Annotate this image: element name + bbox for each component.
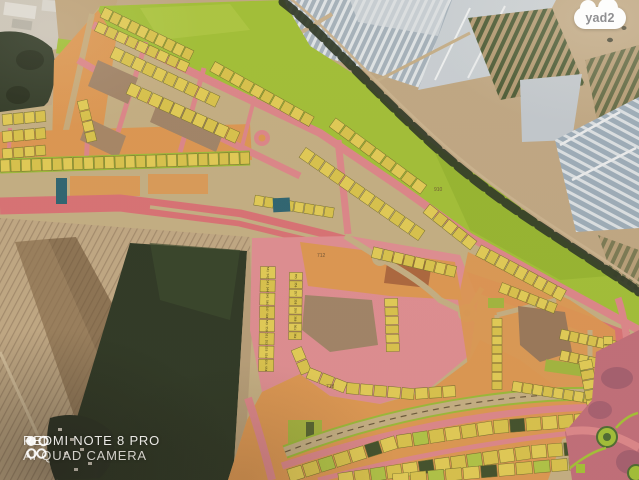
parcel-cell bbox=[209, 153, 219, 165]
parcel-cell bbox=[63, 158, 73, 170]
parcel-cell bbox=[32, 159, 42, 171]
parcel-cell bbox=[13, 130, 24, 142]
block-label: 718 bbox=[326, 384, 335, 390]
parcel-cell bbox=[573, 391, 584, 402]
parcel-number: 359 bbox=[293, 308, 297, 313]
parcel-cell bbox=[480, 465, 497, 478]
parcel-cell bbox=[428, 469, 445, 480]
parcel-cell bbox=[198, 153, 208, 165]
parcel-cell bbox=[146, 155, 156, 167]
parcel-cell bbox=[512, 381, 523, 392]
parcel-cell bbox=[2, 114, 13, 126]
parcel-cell bbox=[294, 202, 305, 213]
parcel-cell bbox=[466, 453, 482, 468]
parcel-cell bbox=[11, 159, 21, 171]
parcel-cell bbox=[492, 345, 502, 353]
park-planting bbox=[601, 367, 633, 389]
parcel-cell bbox=[167, 154, 177, 166]
parcel-cell bbox=[477, 421, 493, 436]
parcel-cell bbox=[533, 460, 550, 473]
parcel-cell bbox=[386, 334, 399, 343]
parcel-cell bbox=[516, 461, 533, 474]
parcel-cell bbox=[542, 386, 553, 397]
parcel-cell bbox=[547, 443, 563, 457]
parcel-cell bbox=[492, 318, 502, 326]
parcel-cell bbox=[385, 316, 398, 325]
parcel-cell bbox=[42, 158, 52, 170]
parcel-number: 553 554 bbox=[264, 346, 268, 358]
parcel-cell bbox=[80, 110, 92, 122]
parcel-cell bbox=[13, 147, 24, 158]
parcel-cell bbox=[492, 372, 502, 380]
parcel-number: 549 550 bbox=[265, 320, 269, 332]
parcel-cell bbox=[522, 383, 533, 394]
parcel-cell bbox=[587, 335, 597, 347]
parcel-cell bbox=[94, 157, 104, 169]
parcel-cell bbox=[2, 131, 13, 143]
parcel-cell bbox=[553, 388, 564, 399]
parcel-cell bbox=[240, 152, 250, 164]
parcel-cell bbox=[2, 148, 13, 159]
parcel-cell bbox=[559, 329, 569, 341]
parcel-cell bbox=[387, 386, 400, 398]
parcel-cell bbox=[73, 157, 83, 169]
parcel-number: 545 546 bbox=[265, 293, 269, 305]
parcel-cell bbox=[569, 331, 579, 343]
parcel-cell bbox=[461, 424, 477, 439]
parcel-cell bbox=[386, 343, 399, 352]
parcel-number: 541 542 bbox=[266, 267, 270, 279]
parcel-cell bbox=[24, 112, 35, 124]
parcel-number: 360 bbox=[293, 316, 297, 321]
listing-photo: 541 542543 544545 546547 548549 550551 5… bbox=[0, 0, 639, 480]
parcel-number: 362 bbox=[293, 333, 297, 338]
parcel-cell bbox=[385, 307, 398, 316]
parcel-cell bbox=[219, 153, 229, 165]
camera-watermark: REDMI NOTE 8 PRO AI QUAD CAMERA bbox=[23, 433, 160, 463]
teal-lot bbox=[56, 178, 67, 204]
parcel-cell bbox=[254, 195, 265, 206]
parcel-cell bbox=[563, 389, 574, 400]
parcel-cell bbox=[492, 336, 502, 344]
parcel-cell bbox=[177, 154, 187, 166]
parcel-number: 356 bbox=[294, 282, 298, 287]
parcel-cell bbox=[370, 467, 386, 480]
parcel-cell bbox=[551, 458, 568, 471]
orange-zone bbox=[148, 174, 208, 194]
parcel-cell bbox=[24, 129, 35, 141]
parcel-cell bbox=[510, 418, 526, 432]
parcel-cell bbox=[77, 99, 89, 111]
parcel-cell bbox=[35, 111, 46, 123]
parcel-cell bbox=[542, 416, 558, 430]
trees bbox=[16, 50, 44, 70]
parcel-cell bbox=[374, 385, 387, 397]
parcel-cell bbox=[324, 207, 335, 218]
parcel-cell bbox=[559, 350, 569, 362]
parcel-number: 358 bbox=[294, 299, 298, 304]
parcel-cell bbox=[85, 131, 97, 143]
parcel-cell bbox=[492, 327, 502, 335]
parcel-cell bbox=[35, 145, 46, 156]
parcel-cell bbox=[578, 333, 588, 345]
parcel-cell bbox=[188, 154, 198, 166]
parcel-cell bbox=[604, 336, 613, 344]
parcel-cell bbox=[304, 203, 315, 214]
parcel-cell bbox=[396, 433, 412, 448]
parcel-number: 357 bbox=[294, 291, 298, 296]
quad-camera-icon bbox=[23, 433, 51, 461]
parcel-number: 555 556 bbox=[264, 359, 268, 371]
parcel-cell bbox=[498, 463, 515, 476]
parcel-cell bbox=[492, 354, 502, 362]
parcel-cell bbox=[125, 156, 135, 168]
parcel-cell bbox=[499, 448, 515, 463]
parcel-number: 361 bbox=[293, 325, 297, 330]
parcel-cell bbox=[82, 120, 94, 132]
park-plaza bbox=[576, 464, 585, 473]
parcel-cell bbox=[445, 468, 462, 480]
yad2-badge-label: yad2 bbox=[574, 7, 626, 29]
parcel-number: 543 544 bbox=[266, 280, 270, 292]
yad2-badge: yad2 bbox=[574, 7, 626, 29]
parcel-cell bbox=[386, 325, 399, 334]
parcel-cell bbox=[346, 383, 359, 395]
parcel-cell bbox=[492, 381, 502, 389]
parcel-cell bbox=[0, 160, 10, 172]
block-label: 910 bbox=[434, 187, 443, 193]
green-strip bbox=[488, 298, 504, 308]
parcel-number: 551 552 bbox=[265, 333, 269, 345]
trees bbox=[6, 86, 30, 104]
parcel-cell bbox=[445, 426, 461, 441]
parcel-cell bbox=[483, 450, 499, 465]
parcel-cell bbox=[415, 387, 428, 399]
parcel-cell bbox=[21, 159, 31, 171]
parcel-cell bbox=[360, 384, 373, 396]
park-circle bbox=[628, 465, 639, 480]
park-circle-core bbox=[603, 433, 611, 441]
parcel-cell bbox=[569, 352, 579, 364]
parcel-cell bbox=[24, 146, 35, 157]
parcel-cell bbox=[532, 384, 543, 395]
roundabout-island bbox=[259, 135, 266, 142]
parcel-cell bbox=[443, 386, 456, 398]
teal-lot bbox=[273, 198, 291, 213]
parcel-cell bbox=[115, 156, 125, 168]
parcel-cell bbox=[354, 469, 370, 480]
parcel-number: 355 bbox=[294, 274, 298, 279]
parcel-cell bbox=[526, 417, 542, 431]
parcel-cell bbox=[136, 155, 146, 167]
block-label: 712 bbox=[317, 253, 326, 259]
parcel-cell bbox=[463, 466, 480, 479]
parcel-cell bbox=[401, 388, 414, 400]
parcel-cell bbox=[410, 471, 427, 480]
parcel-cell bbox=[35, 128, 46, 140]
parcel-cell bbox=[429, 428, 445, 443]
parcel-cell bbox=[314, 205, 325, 216]
parcel-cell bbox=[531, 444, 547, 458]
parcel-cell bbox=[412, 431, 428, 446]
parcel-cell bbox=[515, 446, 531, 461]
parcel-cell bbox=[157, 155, 167, 167]
parcel-cell bbox=[492, 363, 502, 371]
plan-map-photo: 541 542543 544545 546547 548549 550551 5… bbox=[0, 0, 639, 480]
parcel-cell bbox=[84, 157, 94, 169]
parcel-number: 547 548 bbox=[265, 306, 269, 318]
parcel-cell bbox=[493, 420, 509, 434]
parcel-cell bbox=[104, 156, 114, 168]
park-planting bbox=[588, 401, 612, 419]
parcel-cell bbox=[392, 473, 409, 480]
parcel-cell bbox=[385, 298, 398, 307]
parcel-cell bbox=[229, 152, 239, 164]
parcel-cell bbox=[429, 386, 442, 398]
orange-zone bbox=[70, 176, 140, 196]
parcel-cell bbox=[52, 158, 62, 170]
trees bbox=[607, 38, 613, 42]
parcel-cell bbox=[13, 113, 24, 125]
